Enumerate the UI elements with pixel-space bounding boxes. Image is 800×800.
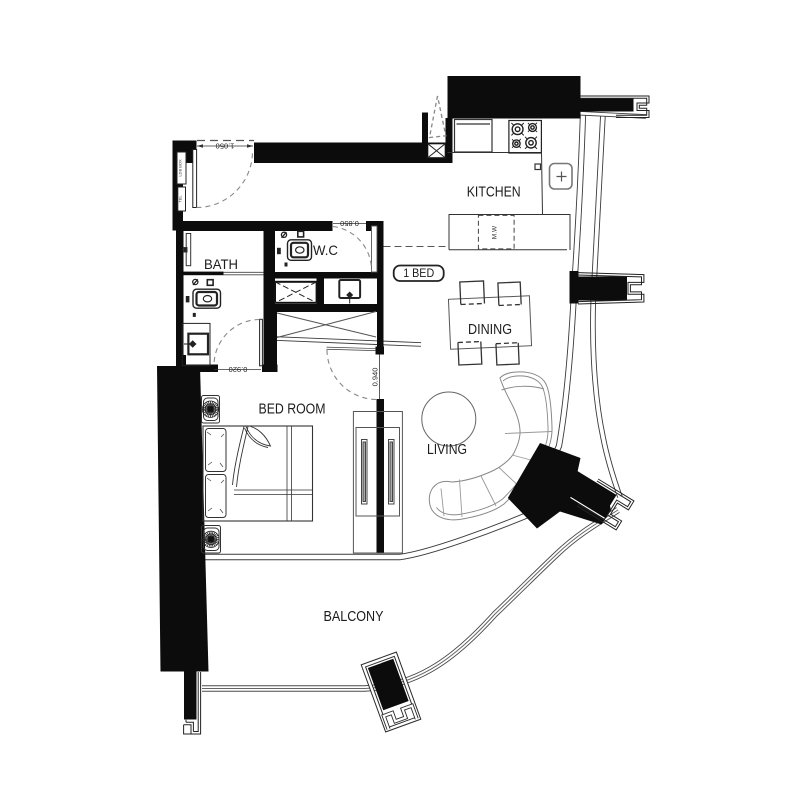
svg-text:0.940: 0.940 — [371, 368, 380, 387]
svg-text:BALCONY: BALCONY — [324, 608, 384, 625]
svg-text:1 BED: 1 BED — [403, 266, 434, 280]
svg-text:KITCHEN: KITCHEN — [467, 184, 521, 201]
svg-text:1.050: 1.050 — [216, 141, 235, 150]
svg-text:TEL: TEL — [178, 195, 183, 203]
svg-text:LDB BOX: LDB BOX — [178, 159, 183, 177]
svg-text:M.W: M.W — [492, 225, 499, 239]
svg-text:LIVING: LIVING — [427, 441, 467, 458]
svg-text:BATH: BATH — [204, 256, 238, 272]
svg-text:DINING: DINING — [468, 321, 512, 338]
svg-text:0.850: 0.850 — [340, 219, 359, 228]
svg-text:0.920: 0.920 — [229, 365, 248, 374]
svg-text:BED ROOM: BED ROOM — [259, 401, 326, 418]
svg-text:W.C: W.C — [313, 242, 338, 258]
